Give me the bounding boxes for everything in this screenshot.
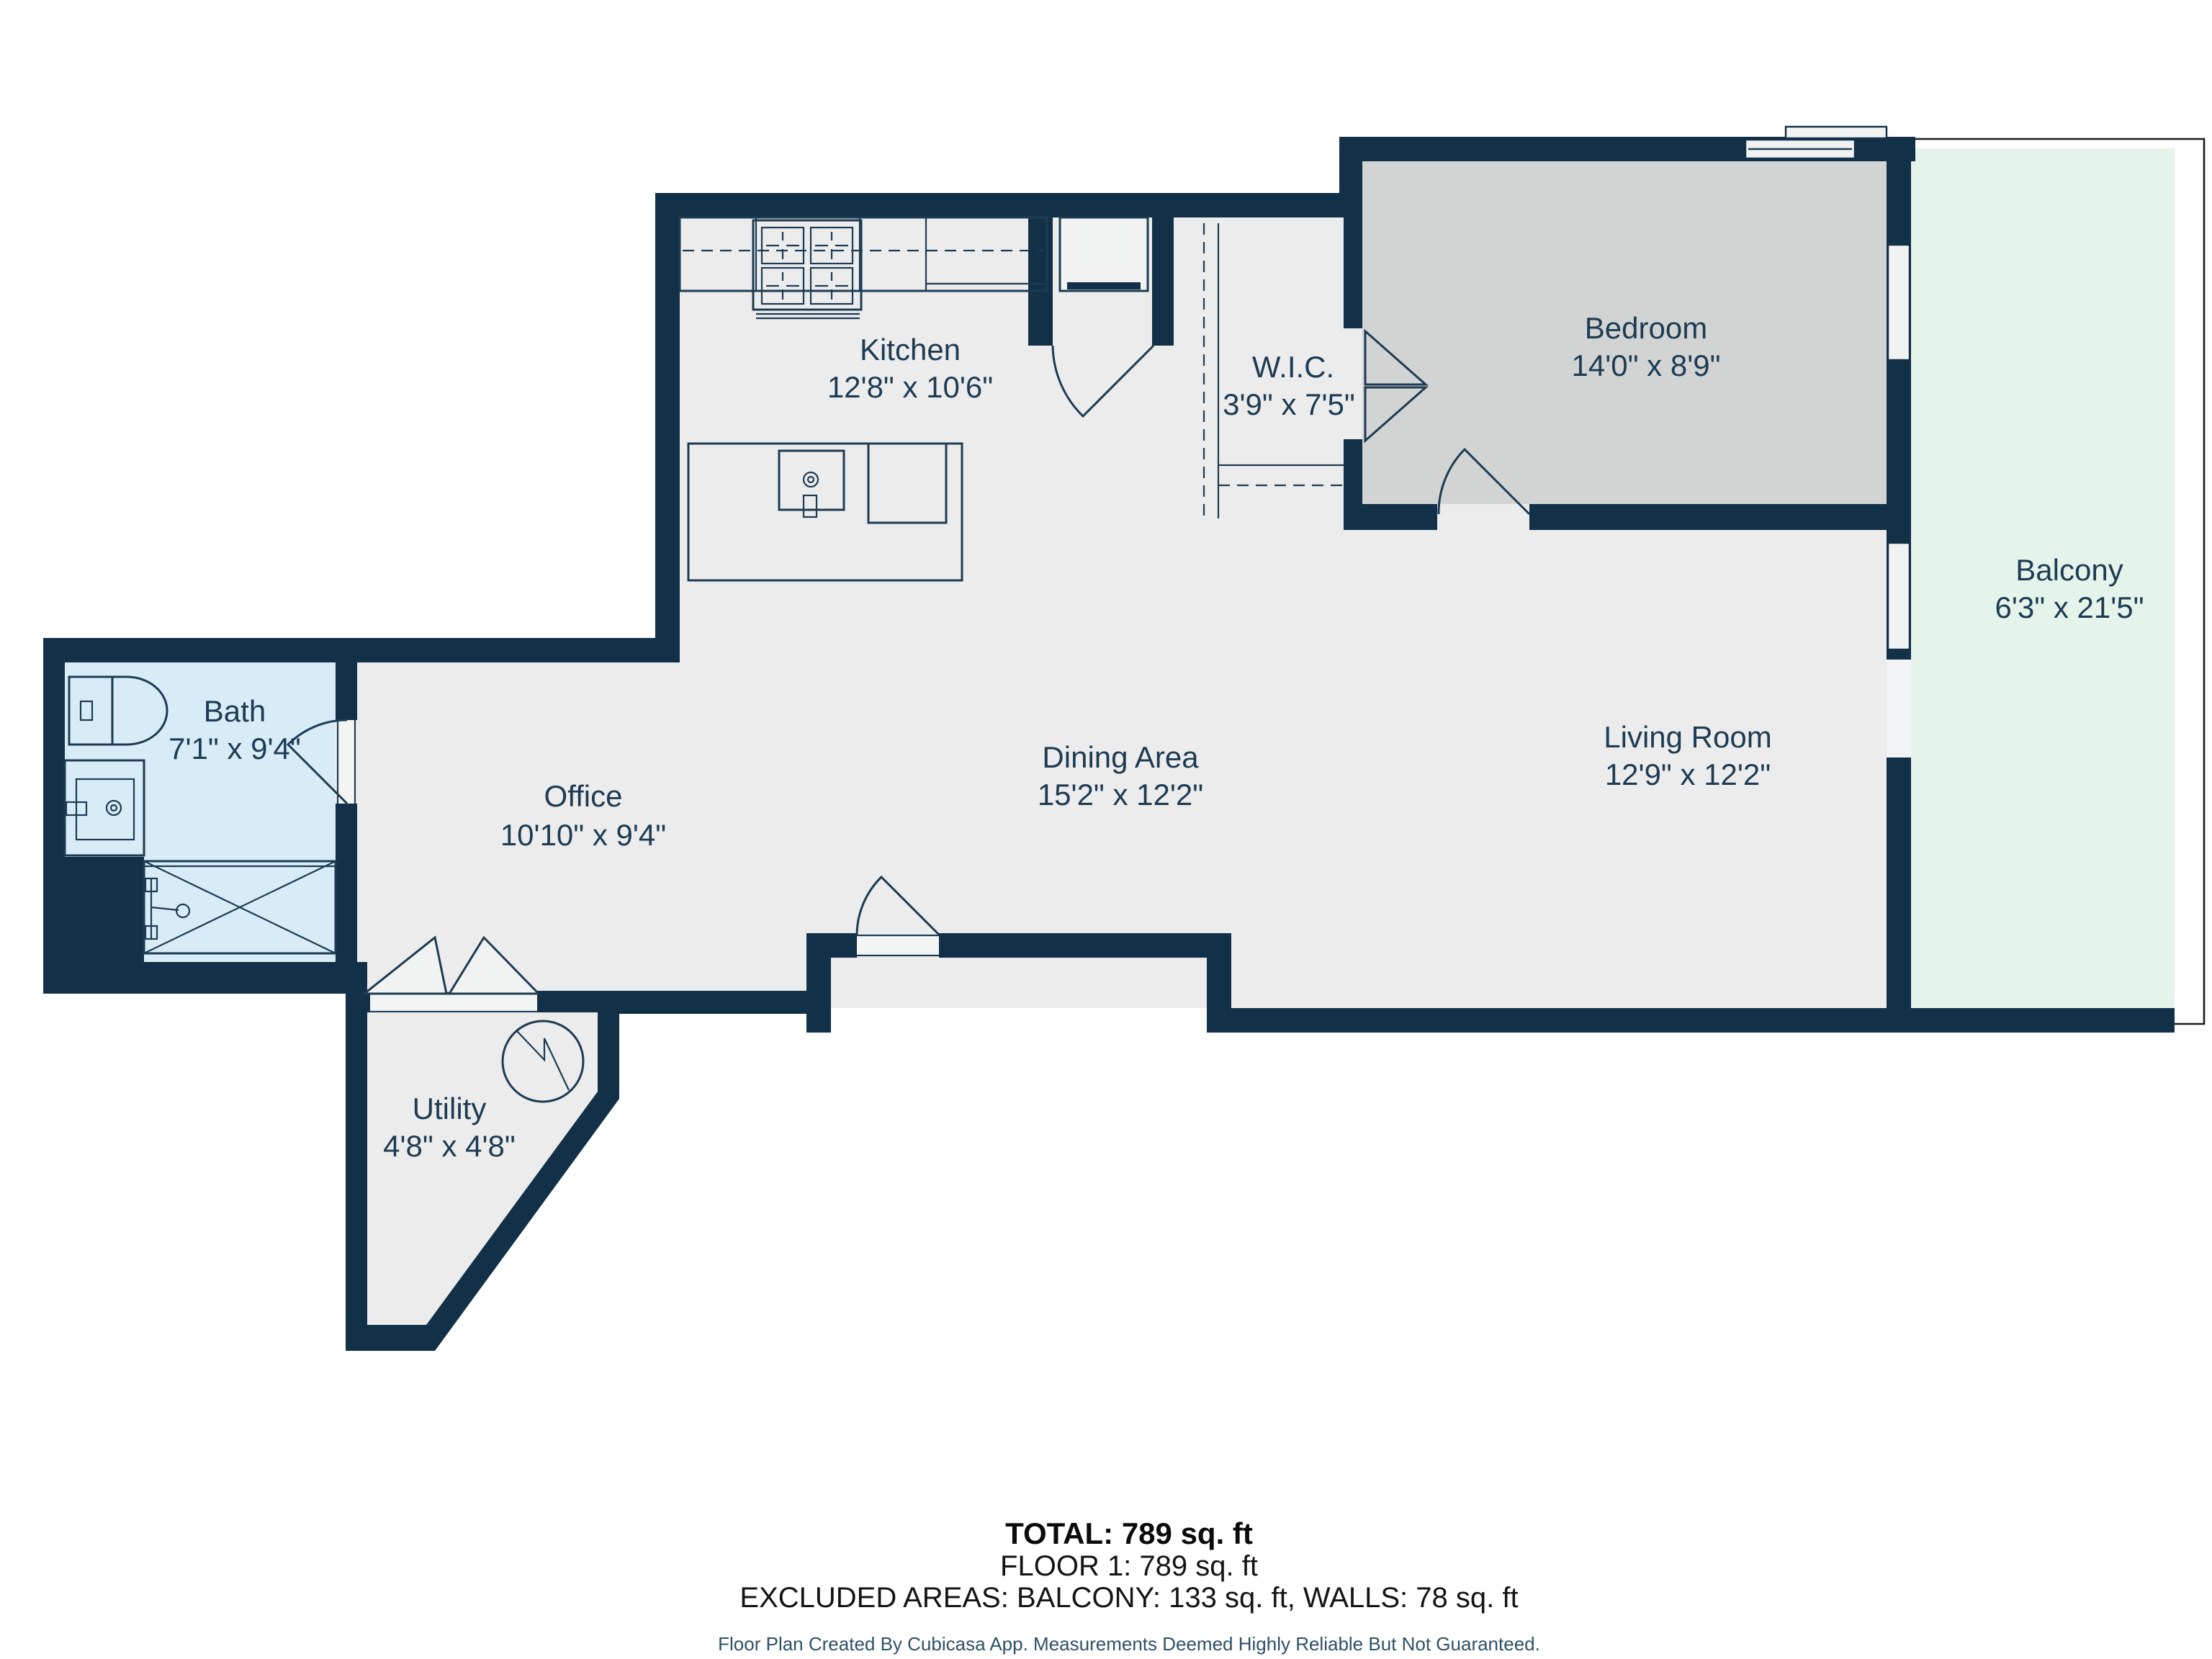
floor-plan: Kitchen 12'8" x 10'6" W.I.C. 3'9" x 7'5"…: [0, 0, 2212, 1659]
bedroom-threshold: [1437, 504, 1529, 530]
living-label: Living Room: [1604, 720, 1771, 754]
fridge-handle: [1067, 282, 1141, 289]
bath-label: Bath: [204, 694, 266, 728]
dining-label: Dining Area: [1042, 740, 1199, 774]
wall-bath-office-top: [43, 638, 680, 662]
kitchen-dims: 12'8" x 10'6": [827, 370, 993, 404]
wall-bedroom-bottom-right: [1529, 504, 1911, 530]
balcony-label: Balcony: [2015, 553, 2123, 587]
bedroom-label: Bedroom: [1585, 311, 1707, 345]
fridge: [1060, 217, 1148, 291]
floor-area-text: FLOOR 1: 789 sq. ft: [1000, 1550, 1258, 1582]
excluded-areas-text: EXCLUDED AREAS: BALCONY: 133 sq. ft, WAL…: [739, 1582, 1518, 1614]
wall-bedroom-bottom-left: [1344, 504, 1437, 530]
wall-bath-left: [43, 638, 65, 994]
wic-dims: 3'9" x 7'5": [1223, 387, 1355, 421]
bedroom-side-window: [1888, 245, 1910, 360]
total-area-text: TOTAL: 789 sq. ft: [1005, 1516, 1253, 1550]
office-label: Office: [544, 779, 623, 813]
wall-top-kitchen-wic: [655, 193, 1361, 217]
wall-bath-corner-block: [65, 857, 144, 962]
balcony-sliding-door: [1887, 660, 1911, 757]
wall-bedroom-top-connector: [1339, 137, 1362, 217]
summary: TOTAL: 789 sq. ft FLOOR 1: 789 sq. ft EX…: [718, 1516, 1540, 1655]
disclaimer-text: Floor Plan Created By Cubicasa App. Meas…: [718, 1633, 1540, 1655]
utility-label: Utility: [413, 1092, 487, 1125]
wall-wic-left: [1152, 193, 1174, 346]
wall-bath-right-upper: [336, 638, 357, 720]
wall-dining-bottom-right: [939, 933, 1231, 958]
entry-threshold: [857, 933, 939, 958]
wall-bath-bottom: [43, 962, 367, 994]
bath-threshold: [336, 720, 357, 804]
kitchen-label: Kitchen: [860, 333, 961, 367]
utility-dims: 4'8" x 4'8": [383, 1129, 516, 1163]
living-dims: 12'9" x 12'2": [1605, 757, 1771, 791]
wall-bottom-step: [1207, 958, 1231, 1033]
wall-bottom-main: [1231, 1008, 2175, 1033]
wall-dining-bottom-left: [806, 933, 857, 958]
wall-bath-right-lower: [336, 804, 357, 994]
living-room-window: [1888, 543, 1910, 649]
bedroom-dims: 14'0" x 8'9": [1572, 349, 1721, 382]
bath-dims: 7'1" x 9'4": [168, 732, 301, 765]
wall-wic-bedroom-upper: [1344, 217, 1362, 328]
wall-kitchen-left: [655, 193, 680, 662]
office-floor-lower: [680, 933, 806, 994]
wall-alcove-stub: [1028, 193, 1053, 346]
office-dims: 10'10" x 9'4": [500, 818, 666, 852]
bedroom-window-sill: [1786, 127, 1887, 138]
wic-opening: [1344, 328, 1362, 439]
wall-office-bottom: [619, 991, 831, 1014]
dining-dims: 15'2" x 12'2": [1038, 778, 1203, 811]
balcony-dims: 6'3" x 21'5": [1995, 590, 2144, 624]
wic-label: W.I.C.: [1252, 350, 1334, 384]
